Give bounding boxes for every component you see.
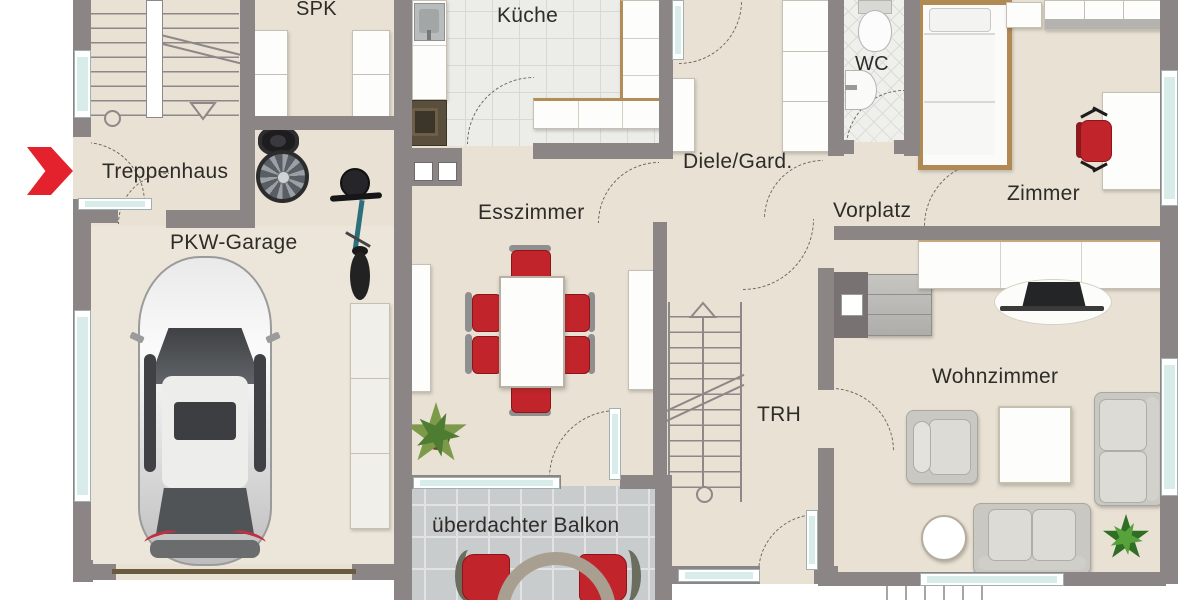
terrace-step-line: [924, 584, 926, 600]
terrace-step-line: [886, 584, 888, 600]
dining-chair-back: [465, 292, 472, 332]
round-side-table: [921, 515, 967, 561]
window-treppenhaus-left: [74, 50, 91, 118]
window-zimmer-right: [1161, 70, 1178, 206]
wall-treppenhaus-spk: [240, 0, 255, 228]
window-garage-left: [74, 310, 91, 502]
room-label-spk: SPK: [296, 0, 337, 21]
wall-center-vertical: [394, 0, 412, 600]
terrace-step-line: [943, 584, 945, 600]
chimney-shaft: [438, 162, 457, 181]
car-side-window: [144, 354, 156, 472]
wall-esszimmer-trh: [653, 222, 667, 478]
dining-chair: [472, 294, 502, 332]
room-label-vorplatz: Vorplatz: [833, 199, 911, 223]
entry-opening: [73, 137, 91, 199]
pillow: [929, 8, 991, 32]
car-rear-window: [156, 488, 254, 534]
chimney-block-wohnzimmer: [834, 272, 868, 338]
wall-treppenhaus-garage-b: [166, 210, 240, 228]
potted-plant-esszimmer: [404, 402, 468, 466]
car-side-window: [254, 354, 266, 472]
wall-wc-right: [904, 0, 920, 156]
wall-trh-wohnzimmer-lower: [818, 448, 834, 574]
kitchen-sink: [414, 3, 445, 41]
room-label-kueche: Küche: [497, 4, 558, 28]
diele-wardrobe: [782, 0, 830, 152]
exterior-below-garage: [73, 580, 394, 600]
chimney-shaft: [414, 162, 433, 181]
stair-rail: [146, 0, 163, 118]
window-wohnzimmer-right: [1161, 358, 1178, 496]
office-chair: [1066, 108, 1114, 172]
door-leaf-trh-south: [806, 510, 818, 570]
wall-kitchen-chimney-block: [398, 148, 462, 186]
room-label-pkw-garage: PKW-Garage: [170, 231, 298, 255]
armchair: [906, 410, 978, 484]
room-label-diele-gard: Diele/Gard.: [683, 150, 793, 174]
tv: [1022, 282, 1086, 308]
door-leaf-diele-entry: [672, 0, 684, 60]
dining-table: [499, 276, 565, 388]
entrance-arrow-icon: [27, 147, 73, 195]
duvet: [924, 33, 995, 155]
entry-door-leaf: [78, 198, 152, 210]
stair-down-arrow-icon: [188, 100, 218, 122]
bed: [918, 0, 1012, 170]
terrace-step-line: [981, 584, 983, 600]
spk-shelf-left: [254, 30, 288, 120]
car-rear-bumper: [150, 540, 260, 558]
nightstand: [1006, 2, 1042, 28]
tv-soundbar: [1000, 306, 1104, 311]
trh-stair-newel-circle: [696, 486, 713, 503]
door-leaf-balcony: [609, 408, 621, 480]
wall-wc-left: [828, 0, 844, 156]
room-label-wohnzimmer: Wohnzimmer: [932, 365, 1058, 389]
window-trh-bottom: [678, 569, 760, 582]
wall-wc-bottom-right: [894, 140, 920, 154]
chimney-shaft: [841, 294, 863, 316]
dining-chair-back: [465, 334, 472, 374]
sofa-right: [1094, 392, 1164, 506]
wall-kitchen-bottom: [533, 143, 673, 159]
dining-chair: [472, 336, 502, 374]
alloy-wheel: [256, 150, 309, 203]
toilet: [856, 0, 892, 52]
stair-newel-circle: [104, 110, 121, 127]
sofa-bottom: [973, 503, 1091, 575]
zimmer-top-cabinet: [1044, 0, 1164, 30]
garage-shelf: [350, 303, 390, 529]
wall-garage-bottom-b: [352, 564, 396, 580]
car-top-view: [138, 256, 272, 566]
bicycle: [328, 150, 384, 302]
spk-shelf-right: [352, 30, 390, 120]
trh-up-arrow-icon: [688, 300, 718, 320]
wall-wohnzimmer-top: [834, 226, 1166, 240]
room-label-esszimmer: Esszimmer: [478, 201, 585, 225]
potted-plant-wohnzimmer: [1102, 514, 1150, 562]
terrace-step-line: [905, 584, 907, 600]
room-label-ueberdachter-balkon: überdachter Balkon: [432, 514, 620, 538]
floor-plan: SPK Küche WC Diele/Gard. Treppenhaus Zim…: [0, 0, 1200, 600]
room-label-trh: TRH: [757, 403, 801, 427]
terrace-step-line: [962, 584, 964, 600]
room-label-treppenhaus: Treppenhaus: [102, 160, 228, 184]
car-sunroof: [174, 402, 236, 440]
wall-wc-bottom-left: [828, 140, 854, 154]
wall-kitchen-diele: [659, 0, 673, 158]
wall-trh-wohnzimmer-upper: [818, 268, 834, 390]
window-wohnzimmer-bottom: [920, 573, 1064, 586]
garage-door-line: [112, 569, 356, 574]
window-esszimmer-bottom: [413, 477, 560, 489]
room-label-zimmer: Zimmer: [1007, 182, 1080, 206]
kitchen-counter-bottom: [533, 98, 667, 129]
room-label-wc: WC: [855, 53, 889, 76]
coffee-table: [998, 406, 1072, 484]
trh-stair-center-line: [702, 306, 704, 488]
wall-spk-bottom: [255, 116, 395, 130]
